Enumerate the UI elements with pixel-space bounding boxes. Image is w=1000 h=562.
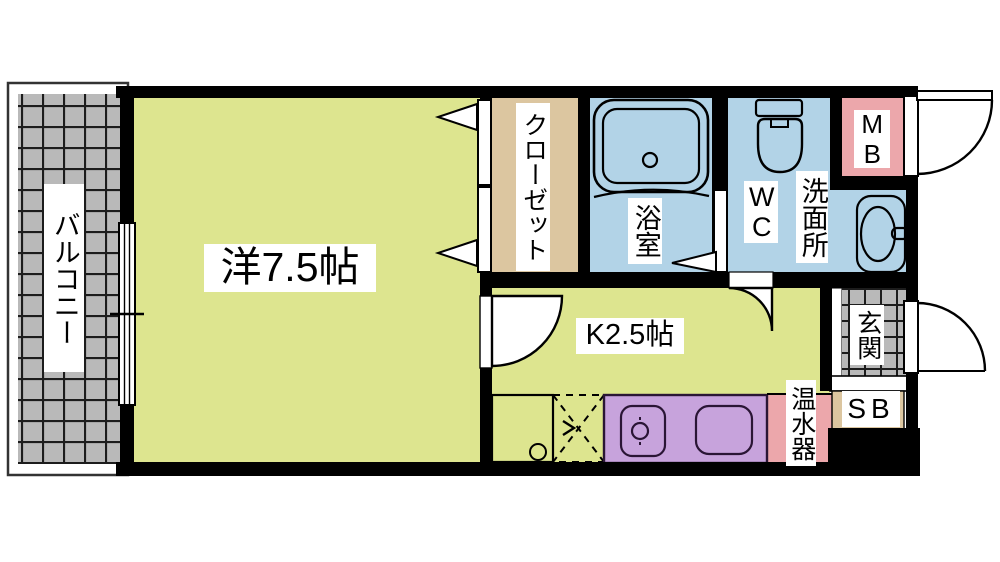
kitchen-label: K2.5帖 [576, 318, 684, 354]
balcony-label: バルコニー [44, 184, 84, 372]
closet-label: クローゼット [516, 103, 550, 271]
meter-box-door-swing [904, 91, 992, 176]
entrance-step [830, 376, 910, 391]
floorplan: バルコニー 洋7.5帖 クローゼット 浴室 WC 洗面所 MB K2.5帖 玄関… [0, 0, 1000, 562]
entry-door-swing [904, 301, 985, 373]
wc-label: WC [744, 181, 778, 243]
floorplan-drawing [0, 0, 1000, 562]
bathroom-label: 浴室 [628, 198, 662, 264]
meter-box-label: MB [854, 110, 890, 168]
sink-counter [604, 395, 767, 463]
water-heater-label: 温水器 [786, 380, 816, 466]
washroom-label: 洗面所 [796, 171, 828, 263]
shoe-box-label: SB [842, 391, 900, 427]
western-room-label: 洋7.5帖 [204, 244, 376, 292]
entrance-label: 玄関 [850, 305, 884, 365]
